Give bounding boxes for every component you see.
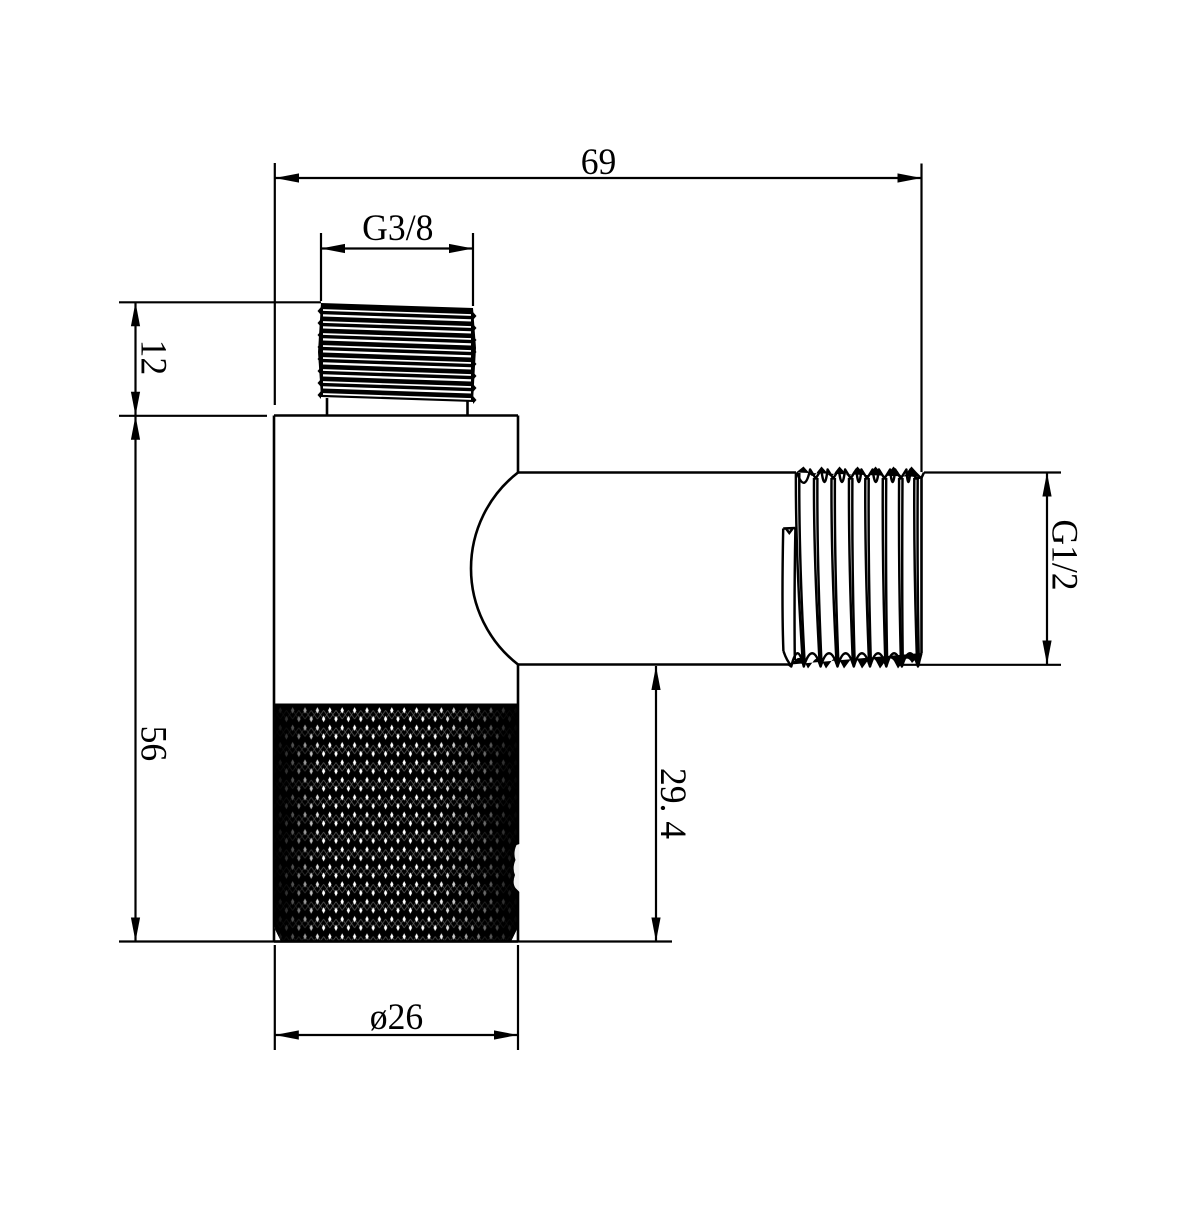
svg-text:69: 69 (581, 140, 617, 182)
svg-text:56: 56 (133, 726, 175, 762)
svg-text:G3/8: G3/8 (362, 206, 433, 248)
svg-text:29. 4: 29. 4 (653, 768, 695, 839)
svg-text:ø26: ø26 (370, 995, 423, 1037)
svg-text:12: 12 (133, 340, 175, 376)
svg-text:G1/2: G1/2 (1044, 519, 1086, 590)
